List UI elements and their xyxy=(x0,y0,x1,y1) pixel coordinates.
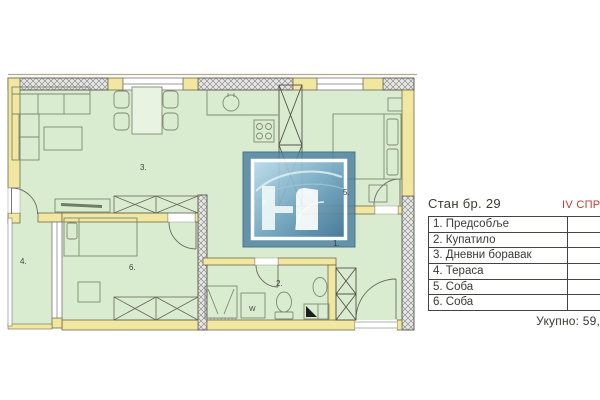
areas-table: 1. Предсобље 8, 2. Купатило 4, 3. Дневни… xyxy=(428,216,600,311)
room-area: 9, xyxy=(568,295,600,310)
table-row: 2. Купатило 4, xyxy=(429,233,600,249)
label-bedroom2: 6. xyxy=(129,263,136,272)
panel-header: Стан бр. 29 IV СПРАТ xyxy=(428,196,600,216)
watermark-logo: F xyxy=(243,152,355,247)
label-hall: 1. xyxy=(333,239,340,248)
room-area: 8, xyxy=(568,217,600,232)
label-washing-machine: W xyxy=(249,306,256,313)
logo-door xyxy=(296,188,318,230)
room-name: 1. Предсобље xyxy=(429,217,568,232)
table-row: 6. Соба 9, xyxy=(429,295,600,310)
room-name: 6. Соба xyxy=(429,295,568,310)
room-name: 5. Соба xyxy=(429,280,568,295)
total-area: Укупно: 59, xyxy=(428,314,600,328)
terrace-railing xyxy=(8,218,12,326)
watermark-letter: F xyxy=(262,200,266,207)
room-name: 2. Купатило xyxy=(429,233,568,248)
logo-pillar xyxy=(262,186,275,230)
room-area: 3, xyxy=(568,264,600,279)
dining-table xyxy=(132,87,162,134)
label-bedroom1: 5. xyxy=(343,188,350,197)
label-terrace: 4. xyxy=(20,257,27,266)
table-row: 1. Предсобље 8, xyxy=(429,217,600,233)
entrance-opening xyxy=(355,320,397,330)
room-name: 3. Дневни боравак xyxy=(429,248,568,263)
label-living: 3. xyxy=(140,163,147,172)
room-area: 10, xyxy=(568,280,600,295)
logo-bar xyxy=(275,206,293,213)
table-row: 3. Дневни боравак 23, xyxy=(429,248,600,264)
floor-label: IV СПРАТ xyxy=(562,199,600,211)
room-area: 4, xyxy=(568,233,600,248)
table-row: 4. Тераса 3, xyxy=(429,264,600,280)
table-row: 5. Соба 10, xyxy=(429,280,600,296)
area-table-panel: Стан бр. 29 IV СПРАТ 1. Предсобље 8, 2. … xyxy=(428,196,600,328)
label-bathroom: 2. xyxy=(276,279,283,288)
apartment-title: Стан бр. 29 xyxy=(428,196,501,211)
room-area: 23, xyxy=(568,248,600,263)
room-name: 4. Тераса xyxy=(429,264,568,279)
floorplan-page: { "panel": { "title": "Стан бр. 29", "fl… xyxy=(0,0,600,400)
